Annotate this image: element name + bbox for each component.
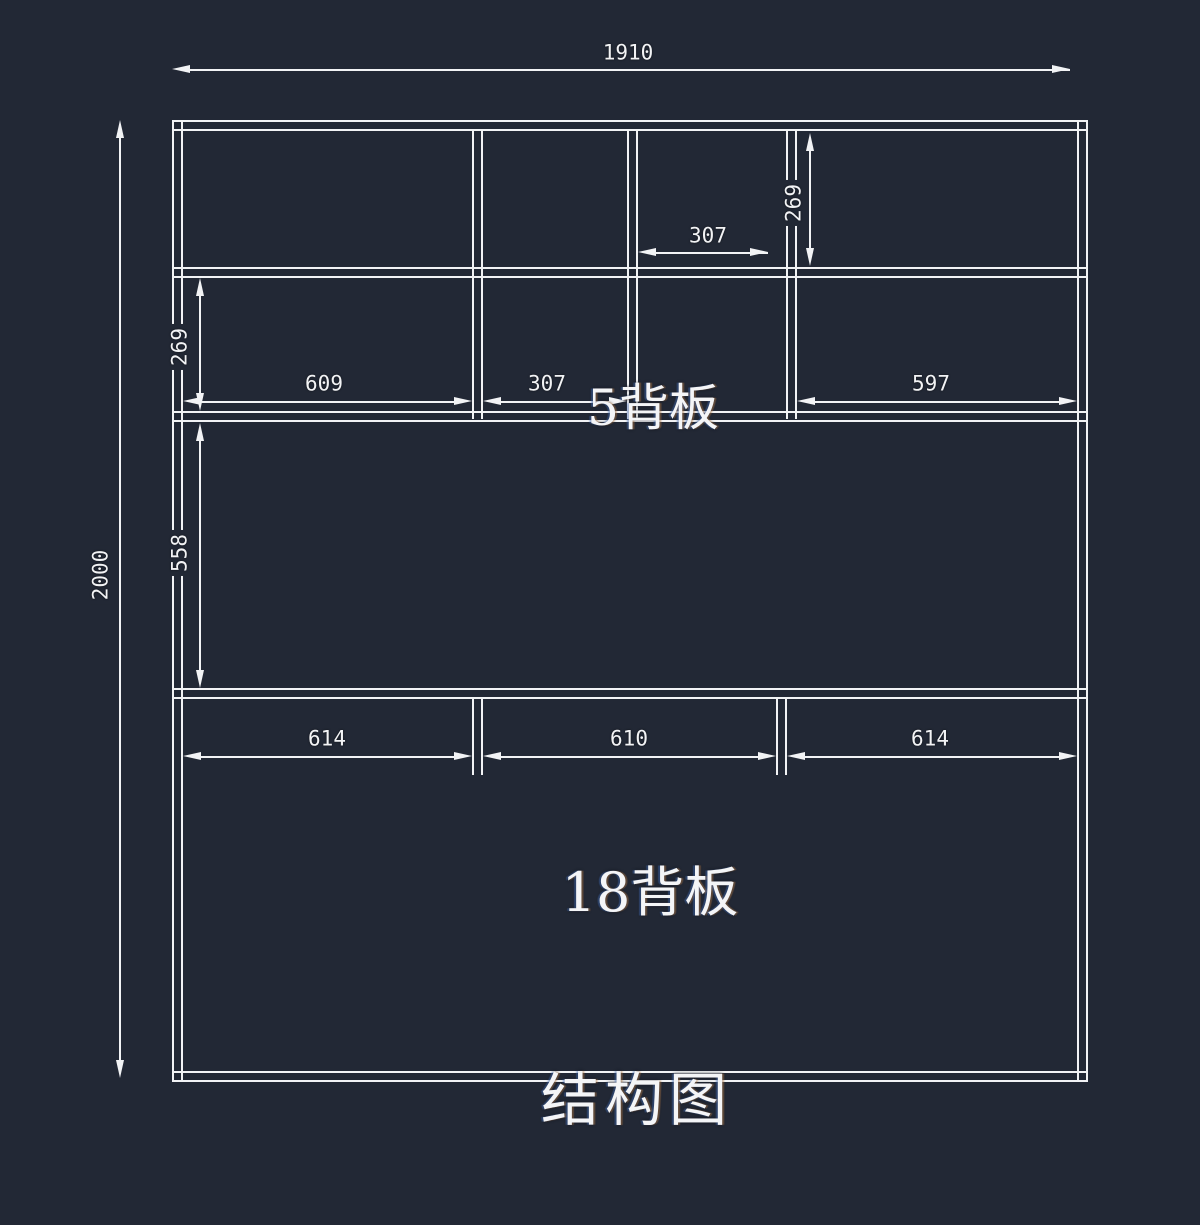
dim-arrow-left-icon [797,397,815,405]
vertical-divider-1 [472,129,483,419]
dim-arrow-down-icon [806,248,814,266]
dim-arrow-up-icon [196,278,204,296]
bottom-stub-divider-1 [472,697,483,775]
lower-back-panel-label: 18背板 [562,866,739,920]
dim-line [190,69,1070,71]
mid-horizontal-divider [172,688,1088,699]
dim-arrow-right-icon [1059,397,1077,405]
dim-line [501,756,758,758]
dim-bottom-mid-width-label: 610 [610,729,648,750]
dim-top-row-height-label: 269 [783,180,806,226]
dim-arrow-right-icon [750,248,768,256]
drawing-title: 结构图 [541,1071,733,1129]
dim-line [201,401,454,403]
dim-second-row-left-width-label: 609 [305,374,343,395]
dim-line [199,294,201,396]
cad-viewport: 1910 2000 307 269 269 609 307 [0,0,1200,1225]
dim-line [815,401,1059,403]
dim-arrow-right-icon [758,752,776,760]
dim-arrow-up-icon [116,120,124,138]
dim-second-row-right-width-label: 597 [912,374,950,395]
dim-arrow-left-icon [183,752,201,760]
vertical-divider-3 [786,129,797,419]
cabinet-left-panel [172,120,183,1082]
cabinet-right-panel [1077,120,1088,1082]
vertical-divider-2 [627,129,638,419]
dim-overall-width-label: 1910 [603,43,654,64]
dim-arrow-down-icon [196,670,204,688]
bottom-stub-divider-2 [776,697,787,775]
dim-line [805,756,1059,758]
dim-second-row-height-label: 269 [169,324,192,370]
dim-arrow-right-icon [454,752,472,760]
dim-arrow-right-icon [1059,752,1077,760]
dim-arrow-right-icon [1052,65,1070,73]
dim-overall-height-label: 2000 [90,546,113,605]
dim-line [199,439,201,673]
dim-second-row-mid-width-label: 307 [528,374,566,395]
dim-middle-section-height-label: 558 [169,530,192,576]
dim-line [119,136,121,1062]
dim-arrow-left-icon [483,752,501,760]
dim-arrow-up-icon [196,423,204,441]
dim-arrow-down-icon [116,1060,124,1078]
dim-arrow-left-icon [172,65,190,73]
dim-arrow-up-icon [806,133,814,151]
dim-arrow-right-icon [454,397,472,405]
upper-back-panel-label: 5背板 [587,383,719,433]
dim-arrow-left-icon [787,752,805,760]
dim-bottom-left-width-label: 614 [308,729,346,750]
dim-arrow-left-icon [183,397,201,405]
dim-top-row-cell-width-label: 307 [689,226,727,247]
dim-line [809,149,811,249]
dim-arrow-left-icon [638,248,656,256]
dim-bottom-right-width-label: 614 [911,729,949,750]
dim-arrow-left-icon [483,397,501,405]
dim-line [201,756,454,758]
